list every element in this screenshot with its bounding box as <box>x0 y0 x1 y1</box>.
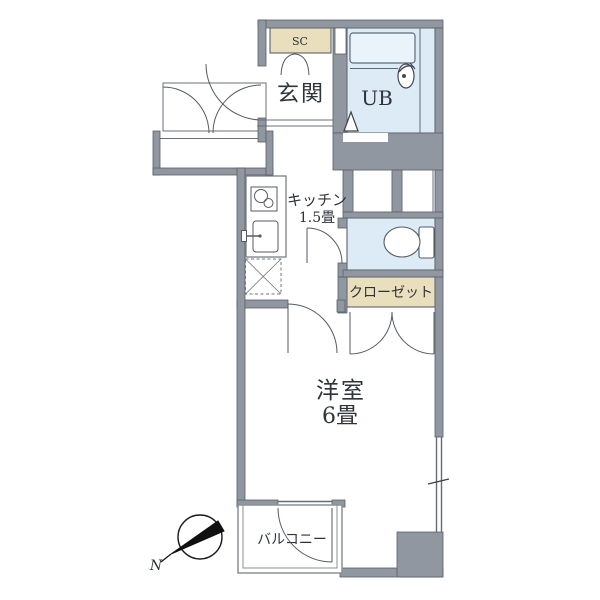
balcony-label: バルコニー <box>257 532 327 548</box>
kitchen-fixtures <box>242 176 287 294</box>
door-swing-icon <box>213 85 261 133</box>
wall-corner-block <box>397 532 443 577</box>
door-swing-icon <box>163 87 209 133</box>
entrance-alcove <box>160 64 266 139</box>
wall-top <box>258 20 443 28</box>
niche-box <box>353 170 392 212</box>
sink-faucet-tip <box>258 234 261 237</box>
wall-toilet-left-upper <box>338 218 347 228</box>
room-door-swing-icon <box>288 304 337 353</box>
wall-alcove-bottom <box>153 168 273 175</box>
bath-faucet-dot <box>402 74 406 78</box>
entrance-label: 玄関 <box>277 82 325 107</box>
shoe-closet-door-swing-icon <box>295 54 309 75</box>
compass-needle-tip <box>161 554 171 562</box>
entrance-door-swing-icon <box>206 64 262 120</box>
wall-left <box>237 168 245 507</box>
closet-door-swing-icon <box>350 312 392 354</box>
wall-right <box>435 28 443 437</box>
niche-box <box>402 170 433 212</box>
sink-faucet-base <box>242 231 247 242</box>
kitchen-size-label: 1.5畳 <box>299 210 335 226</box>
toilet-icon <box>384 227 420 257</box>
wall-alcove-right <box>266 131 273 175</box>
wall-niche-separator <box>392 170 402 212</box>
unit-bath-label: UB <box>361 86 393 110</box>
wall-toilet-top <box>343 212 443 218</box>
wall-room-top-right <box>337 300 345 312</box>
western-room-size-label: 6畳 <box>322 404 358 429</box>
alcove-door-zone <box>163 83 266 131</box>
toilet-fixtures <box>384 227 434 258</box>
wall-entrance-left-lower <box>258 118 266 142</box>
window-tick-symbol <box>428 479 449 484</box>
western-room-label: 洋室 <box>316 378 366 404</box>
shoe-closet-label: SC <box>292 35 308 48</box>
wall-niche <box>335 28 346 54</box>
compass-north-label: N <box>149 558 163 574</box>
kitchen-label: キッチン <box>287 191 347 209</box>
closet-label: クローゼット <box>349 285 433 301</box>
bath-entry-gap <box>343 133 388 142</box>
closet-door-swing-icon <box>392 312 434 354</box>
floor-plan-drawing: N SC 玄関 UB キッチン 1.5畳 クローゼット 洋室 6畳 バルコニー <box>0 0 600 600</box>
toilet-door-swing-icon <box>307 228 342 263</box>
wall-toilet-bottom <box>343 270 443 277</box>
toilet-tank <box>419 227 434 258</box>
bathtub-icon <box>350 33 415 63</box>
floor-plan: N SC 玄関 UB キッチン 1.5畳 クローゼット 洋室 6畳 バルコニー <box>0 0 600 600</box>
wall-entrance-left-upper <box>258 20 266 66</box>
compass-icon: N <box>149 515 224 574</box>
shoe-closet-door-swing-icon <box>281 54 295 75</box>
